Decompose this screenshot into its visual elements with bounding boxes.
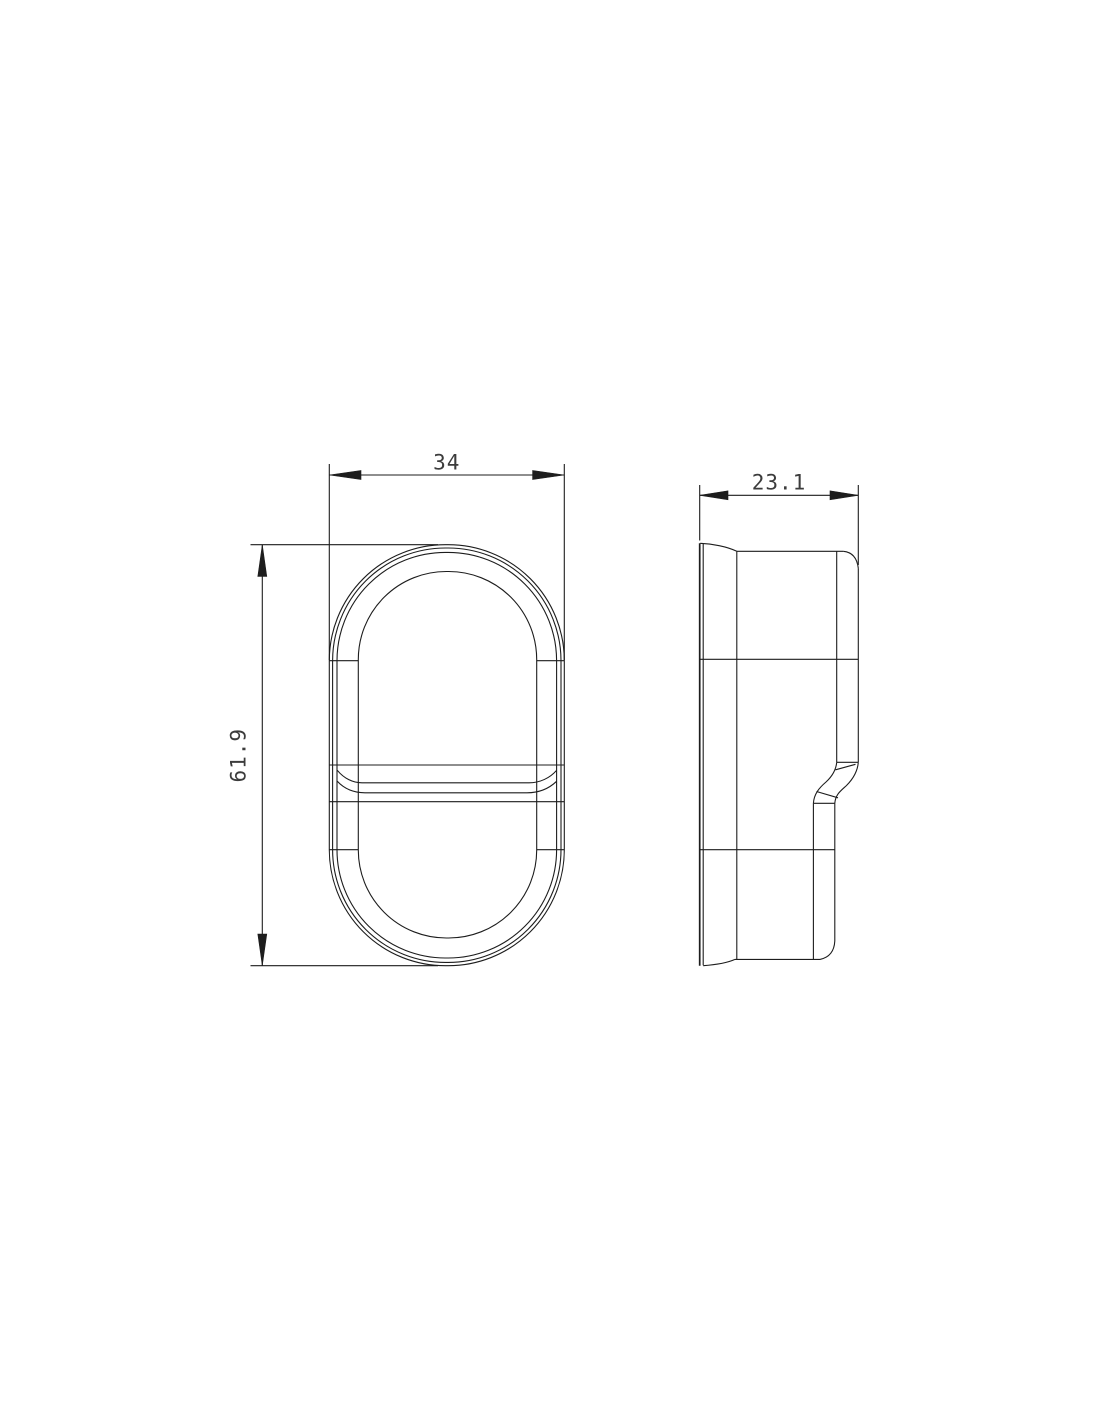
side-view (700, 543, 859, 965)
arrowhead-bottom (258, 934, 267, 966)
front-band-inner-line-1 (337, 770, 556, 783)
arrowhead-left (329, 471, 361, 480)
side-top-left-edge (700, 543, 737, 551)
arrowhead-right (830, 491, 858, 500)
side-step-inner-curve (813, 762, 836, 803)
arrowhead-left (700, 491, 728, 500)
arrowhead-top (258, 545, 267, 577)
side-step-outer-curve (835, 762, 859, 803)
drawing-canvas: 34 61.9 23.1 (0, 0, 1100, 1422)
technical-drawing-page: 34 61.9 23.1 (0, 0, 1100, 1422)
side-step-edge-tick-1 (836, 764, 856, 770)
arrowhead-right (533, 471, 565, 480)
front-view (329, 545, 564, 966)
dimension-front-width: 34 (329, 451, 564, 661)
front-body-contour (333, 548, 561, 962)
side-top-right-corner (843, 551, 858, 568)
front-outer-contour (329, 545, 564, 966)
front-inner-opening-contour (358, 572, 536, 939)
side-bottom-right-corner (820, 941, 835, 959)
front-width-dimension-text: 34 (433, 451, 460, 475)
side-depth-dimension-text: 23.1 (752, 471, 807, 495)
front-height-dimension-text: 61.9 (227, 728, 251, 783)
side-bottom-left-edge (703, 959, 735, 965)
side-step-edge-tick-2 (817, 792, 839, 798)
